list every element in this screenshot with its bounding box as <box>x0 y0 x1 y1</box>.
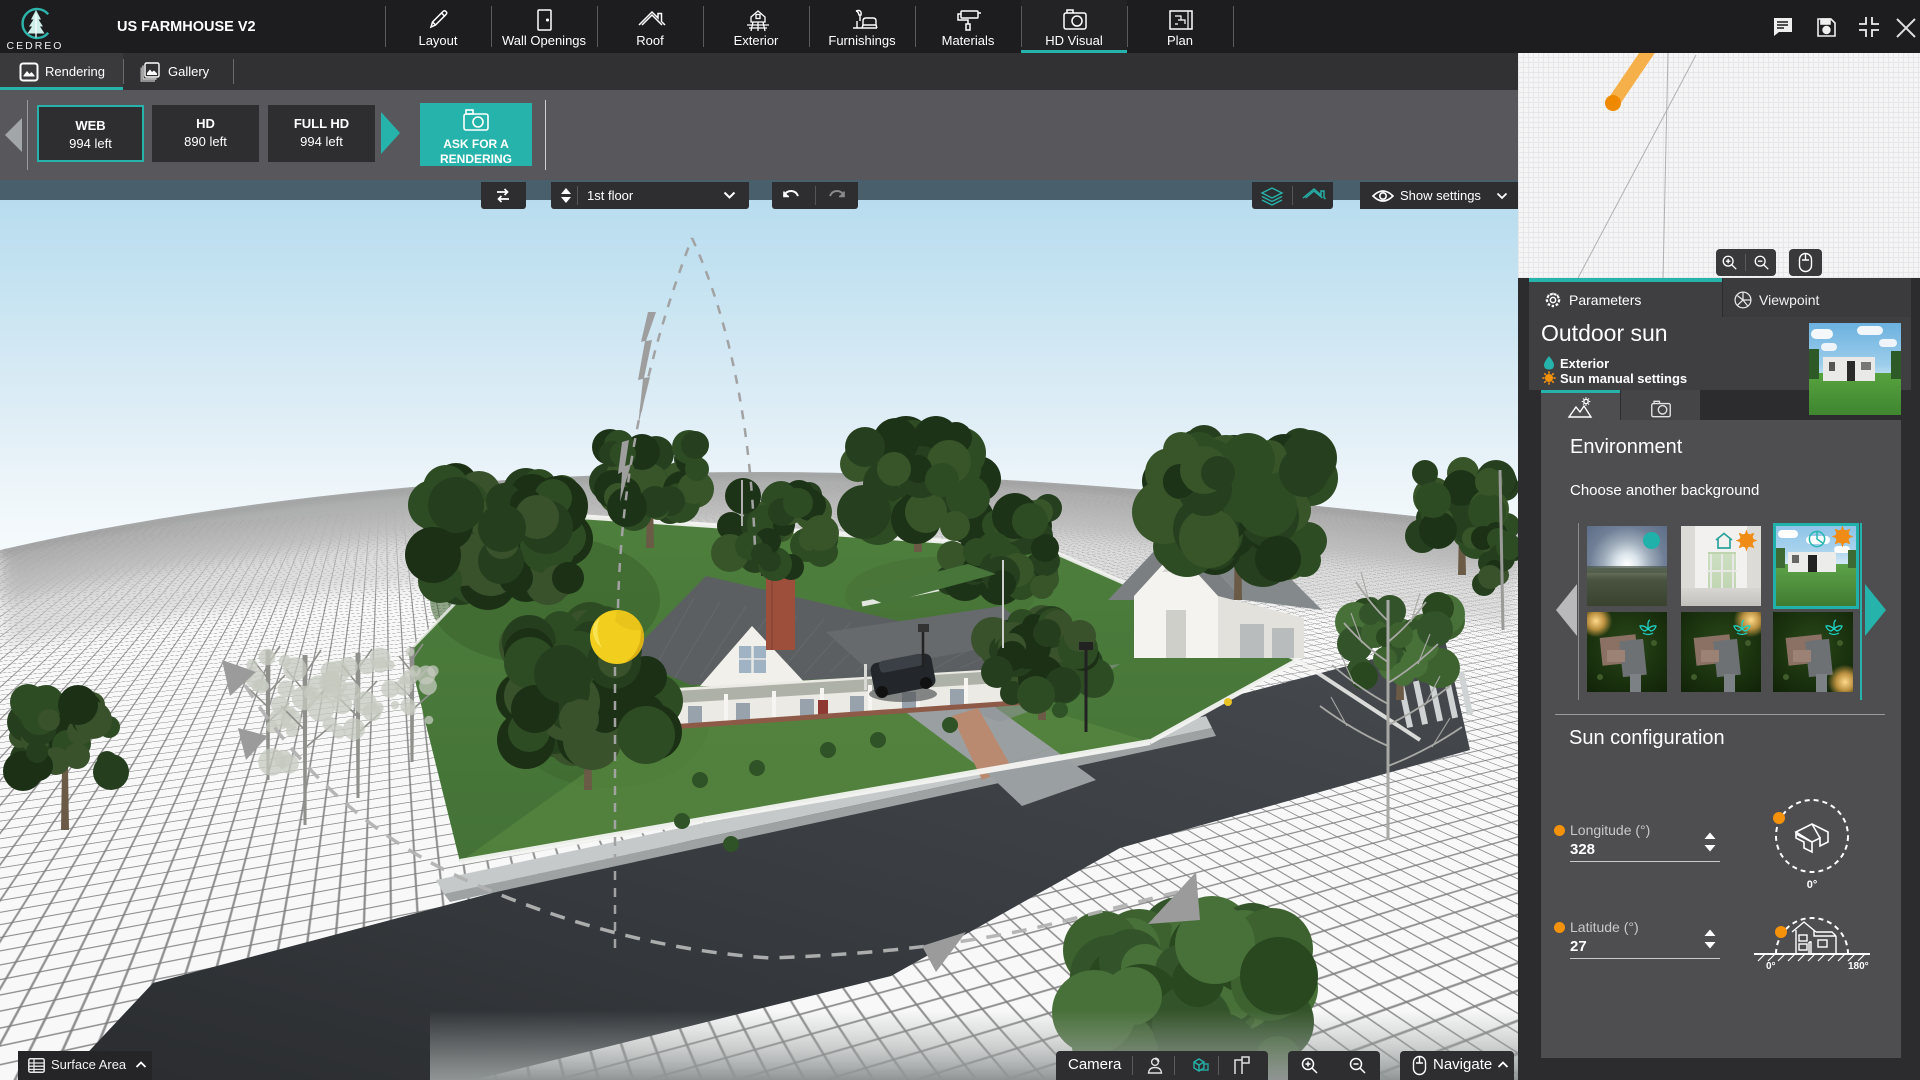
svg-text:CEDREO: CEDREO <box>7 40 62 52</box>
svg-text:0°: 0° <box>1766 961 1776 972</box>
svg-text:180°: 180° <box>1848 961 1869 972</box>
